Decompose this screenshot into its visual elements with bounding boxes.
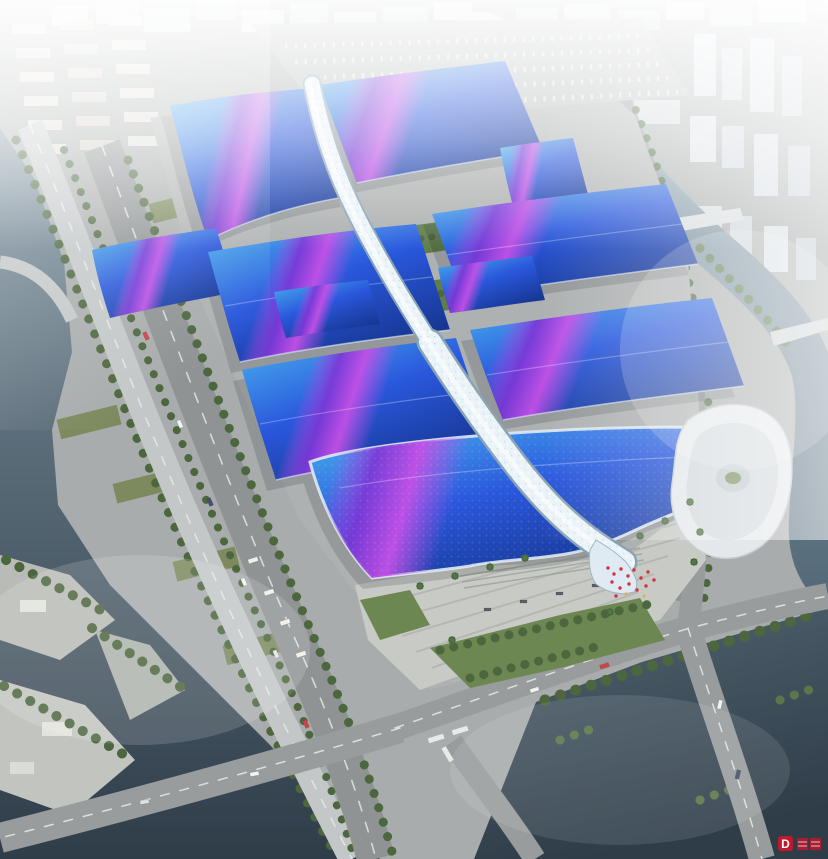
rendering-canvas: D [0, 0, 828, 859]
watermark-letter: D [781, 837, 790, 851]
aerial-rendering: D [0, 0, 828, 859]
watermark: D [778, 836, 821, 851]
